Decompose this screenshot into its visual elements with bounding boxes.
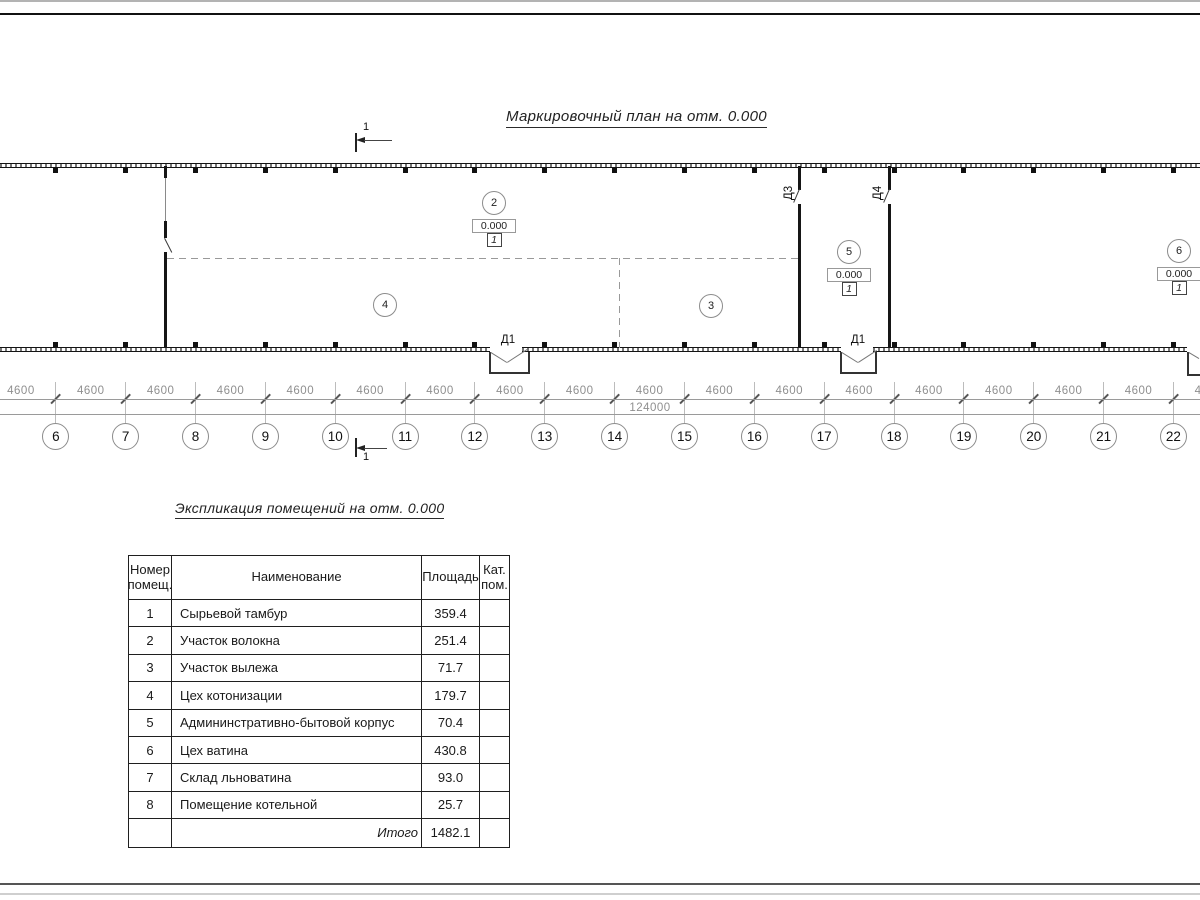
category-box: 1 <box>1172 281 1187 295</box>
column-mark <box>263 342 268 347</box>
bay-dimension-label: 4600 <box>1178 385 1200 397</box>
column-mark <box>193 342 198 347</box>
bay-dimension-label: 4600 <box>410 385 470 397</box>
grid-bubble: 7 <box>112 423 139 450</box>
grid-extension-line <box>1103 382 1104 423</box>
category-box: 1 <box>842 282 857 296</box>
bay-dimension-label: 4600 <box>689 385 749 397</box>
room-area-cell: 179.7 <box>421 682 479 708</box>
grid-extension-line <box>1173 382 1174 423</box>
grid-bubble: 19 <box>950 423 977 450</box>
column-mark <box>472 342 477 347</box>
grid-bubble: 11 <box>392 423 419 450</box>
bay-dimension-label: 4600 <box>969 385 1029 397</box>
total-label-cell: Итого <box>171 819 421 847</box>
bay-dimension-label: 4600 <box>0 385 51 397</box>
column-mark <box>403 168 408 173</box>
dimension-line-bays <box>0 399 1200 400</box>
explication-title: Экспликация помещений на отм. 0.000 <box>175 500 444 519</box>
total-category-cell <box>479 819 509 847</box>
bay-dimension-label: 4600 <box>550 385 610 397</box>
grid-extension-line <box>1033 382 1034 423</box>
room-area-cell: 93.0 <box>421 764 479 790</box>
elevation-box: 0.000 <box>1157 267 1200 281</box>
room-number-cell: 8 <box>129 792 171 818</box>
total-dimension-label: 124000 <box>610 402 690 414</box>
room-category-cell <box>479 764 509 790</box>
grid-bubble: 16 <box>741 423 768 450</box>
drawing-sheet: Маркировочный план на отм. 0.000 1 1 Д3 … <box>0 0 1200 900</box>
grid-extension-line <box>474 382 475 423</box>
table-row: 2Участок волокна251.4 <box>129 626 509 653</box>
room-name-cell: Цех ватина <box>171 737 421 763</box>
elevation-box: 0.000 <box>827 268 871 282</box>
elevation-box: 0.000 <box>472 219 516 233</box>
grid-bubble: 13 <box>531 423 558 450</box>
column-mark <box>472 168 477 173</box>
column-mark <box>892 342 897 347</box>
column-mark <box>682 168 687 173</box>
table-row: 4Цех котонизации179.7 <box>129 681 509 708</box>
bay-dimension-label: 4600 <box>270 385 330 397</box>
column-mark <box>53 342 58 347</box>
grid-extension-line <box>335 382 336 423</box>
room-number-cell: 4 <box>129 682 171 708</box>
table-row: 3Участок вылежа71.7 <box>129 654 509 681</box>
total-area-cell: 1482.1 <box>421 819 479 847</box>
room-area-cell: 359.4 <box>421 600 479 626</box>
room-area-cell: 25.7 <box>421 792 479 818</box>
column-mark <box>542 342 547 347</box>
grid-extension-line <box>405 382 406 423</box>
grid-extension-line <box>894 382 895 423</box>
grid-bubble: 14 <box>601 423 628 450</box>
room-number-cell: 5 <box>129 710 171 736</box>
room-category-cell <box>479 737 509 763</box>
room-area-cell: 251.4 <box>421 627 479 653</box>
column-mark <box>612 168 617 173</box>
rooms-table: Номерпомещ. Наименование Площадь Кат.пом… <box>128 555 510 848</box>
grid-extension-line <box>754 382 755 423</box>
room-name-cell: Участок волокна <box>171 627 421 653</box>
room-category-cell <box>479 627 509 653</box>
column-mark <box>333 168 338 173</box>
room-number-cell: 3 <box>129 655 171 681</box>
grid-bubble: 6 <box>42 423 69 450</box>
grid-bubble: 17 <box>811 423 838 450</box>
grid-extension-line <box>55 382 56 423</box>
bay-dimension-label: 4600 <box>61 385 121 397</box>
column-mark <box>961 168 966 173</box>
column-mark <box>1101 168 1106 173</box>
room-marker: 3 <box>699 294 723 318</box>
room-number-cell: 1 <box>129 600 171 626</box>
room-name-cell: Админинстративно-бытовой корпус <box>171 710 421 736</box>
room-marker: 4 <box>373 293 397 317</box>
grid-bubble: 9 <box>252 423 279 450</box>
bay-dimension-label: 4600 <box>480 385 540 397</box>
grid-extension-line <box>824 382 825 423</box>
column-mark <box>193 168 198 173</box>
room-category-cell <box>479 682 509 708</box>
table-header-row: Номерпомещ. Наименование Площадь Кат.пом… <box>129 556 509 599</box>
grid-extension-line <box>195 382 196 423</box>
column-mark <box>123 168 128 173</box>
header-cell-name: Наименование <box>171 556 421 599</box>
column-mark <box>53 168 58 173</box>
grid-extension-line <box>544 382 545 423</box>
room-area-cell: 71.7 <box>421 655 479 681</box>
bay-dimension-label: 4600 <box>1109 385 1169 397</box>
column-mark <box>822 342 827 347</box>
bay-dimension-label: 4600 <box>200 385 260 397</box>
table-row: 7Склад льноватина93.0 <box>129 763 509 790</box>
column-mark <box>1171 342 1176 347</box>
room-area-cell: 70.4 <box>421 710 479 736</box>
bay-dimension-label: 4600 <box>131 385 191 397</box>
room-name-cell: Цех котонизации <box>171 682 421 708</box>
room-name-cell: Сырьевой тамбур <box>171 600 421 626</box>
grid-bubble: 18 <box>881 423 908 450</box>
table-total-row: Итого1482.1 <box>129 818 509 847</box>
bay-dimension-label: 4600 <box>899 385 959 397</box>
column-mark <box>752 168 757 173</box>
grid-bubble: 12 <box>461 423 488 450</box>
header-cell-number: Номерпомещ. <box>129 556 171 599</box>
grid-bubble: 8 <box>182 423 209 450</box>
grid-bubble: 10 <box>322 423 349 450</box>
grid-bubble: 20 <box>1020 423 1047 450</box>
grid-extension-line <box>963 382 964 423</box>
room-area-cell: 430.8 <box>421 737 479 763</box>
room-number-cell: 7 <box>129 764 171 790</box>
room-category-cell <box>479 655 509 681</box>
room-number-cell: 2 <box>129 627 171 653</box>
column-mark <box>1101 342 1106 347</box>
column-mark <box>822 168 827 173</box>
column-mark <box>542 168 547 173</box>
table-row: 6Цех ватина430.8 <box>129 736 509 763</box>
column-mark <box>612 342 617 347</box>
room-category-cell <box>479 710 509 736</box>
header-cell-area: Площадь <box>421 556 479 599</box>
bay-dimension-label: 4600 <box>829 385 889 397</box>
column-mark <box>892 168 897 173</box>
category-box: 1 <box>487 233 502 247</box>
column-mark <box>403 342 408 347</box>
total-empty-cell <box>129 819 171 847</box>
room-marker: 2 <box>482 191 506 215</box>
room-marker: 5 <box>837 240 861 264</box>
header-cell-category: Кат.пом. <box>479 556 509 599</box>
bay-dimension-label: 4600 <box>1039 385 1099 397</box>
bay-dimension-label: 4600 <box>759 385 819 397</box>
column-mark <box>752 342 757 347</box>
bay-dimension-label: 4600 <box>620 385 680 397</box>
grid-bubble: 22 <box>1160 423 1187 450</box>
grid-extension-line <box>265 382 266 423</box>
table-row: 8Помещение котельной25.7 <box>129 791 509 818</box>
room-name-cell: Участок вылежа <box>171 655 421 681</box>
column-mark <box>333 342 338 347</box>
column-mark <box>1031 342 1036 347</box>
dimension-line-total <box>0 414 1200 415</box>
grid-extension-line <box>125 382 126 423</box>
column-mark <box>263 168 268 173</box>
table-row: 1Сырьевой тамбур359.4 <box>129 599 509 626</box>
column-mark <box>123 342 128 347</box>
room-number-cell: 6 <box>129 737 171 763</box>
bay-dimension-label: 4600 <box>340 385 400 397</box>
column-mark <box>682 342 687 347</box>
grid-bubble: 15 <box>671 423 698 450</box>
room-name-cell: Помещение котельной <box>171 792 421 818</box>
column-mark <box>961 342 966 347</box>
column-mark <box>1171 168 1176 173</box>
table-row: 5Админинстративно-бытовой корпус70.4 <box>129 709 509 736</box>
room-category-cell <box>479 600 509 626</box>
room-marker: 6 <box>1167 239 1191 263</box>
room-name-cell: Склад льноватина <box>171 764 421 790</box>
column-mark <box>1031 168 1036 173</box>
room-category-cell <box>479 792 509 818</box>
grid-bubble: 21 <box>1090 423 1117 450</box>
